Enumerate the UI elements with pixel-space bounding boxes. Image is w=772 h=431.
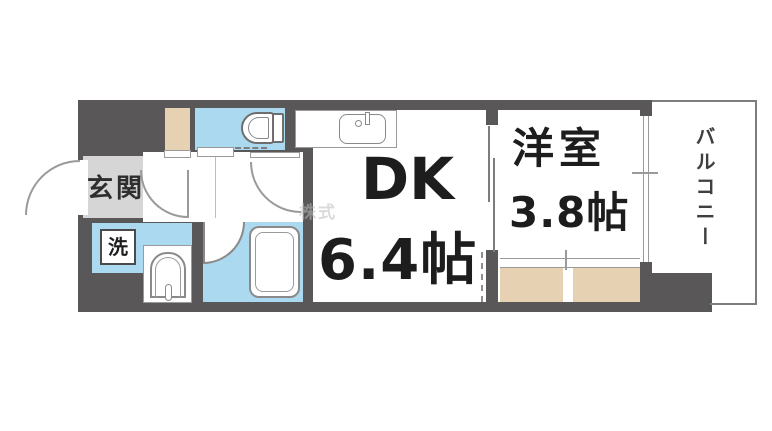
balcony-label: バルコニー — [690, 126, 719, 301]
balcony-window-frame-2 — [648, 116, 649, 262]
shoe-storage-door — [164, 150, 191, 158]
closet-left — [500, 268, 563, 302]
western-room-label: 洋室 — [512, 128, 606, 170]
hall-door-leaf — [187, 170, 189, 218]
washer-pan: 洗 — [100, 229, 136, 265]
balcony-railing-bottom — [710, 303, 757, 305]
western-room-size: 3.8帖 — [509, 192, 629, 234]
bathtub-inner — [255, 232, 294, 292]
sliding-door-panel-1 — [488, 126, 490, 202]
dk-room-label: DK — [361, 150, 454, 208]
entrance-label: 玄関 — [87, 176, 145, 202]
dk-door-leaf — [250, 152, 300, 158]
closet-track-center-tick — [565, 250, 567, 270]
toilet-bowl-inner — [248, 117, 269, 139]
balcony-railing-right — [755, 100, 757, 305]
closet-door-track — [500, 258, 640, 268]
washer-label: 洗 — [108, 237, 128, 257]
hallway-step-line — [215, 152, 216, 218]
wall-closet-left-stub — [486, 250, 498, 302]
closet-side-dashed-line — [481, 252, 483, 302]
shoe-storage — [165, 108, 190, 152]
dk-room-size: 6.4帖 — [318, 233, 477, 289]
floor-plan: 玄関 洗 — [0, 0, 772, 431]
balcony-window — [640, 116, 652, 262]
toilet-door-track — [197, 147, 234, 157]
washbasin-tap-icon — [165, 284, 172, 301]
entrance-door-swing-arc — [25, 160, 80, 215]
closet-right — [573, 268, 640, 302]
balcony-window-frame-1 — [643, 116, 644, 262]
kitchen-sink-icon — [339, 114, 386, 144]
kitchen-faucet-icon — [355, 120, 362, 127]
watermark: 株式 — [299, 198, 337, 223]
sliding-door-panel-2 — [493, 158, 495, 252]
balcony-window-mid-tick — [632, 172, 658, 174]
kitchen-tap-icon — [365, 112, 370, 125]
wall-top — [313, 100, 652, 110]
balcony-railing-top — [652, 100, 757, 102]
toilet-folding-door — [235, 147, 267, 149]
wall-right-bottom — [640, 262, 652, 312]
